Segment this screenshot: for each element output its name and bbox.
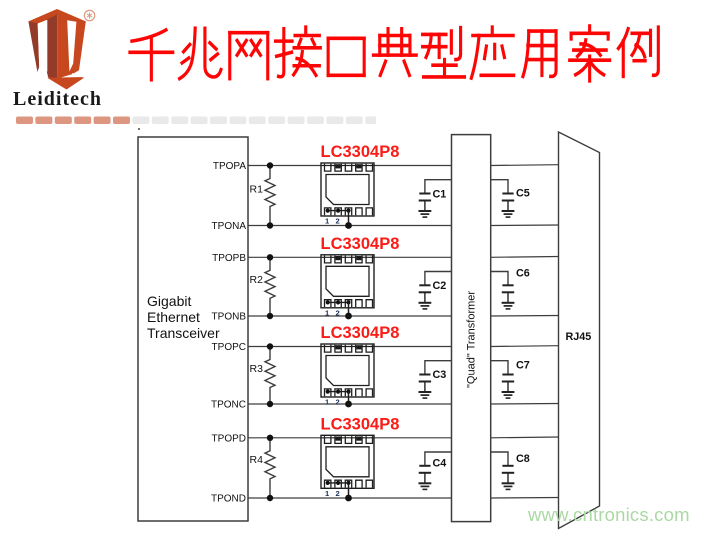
svg-text:R1: R1 bbox=[250, 184, 264, 196]
svg-text:R3: R3 bbox=[250, 363, 264, 375]
svg-text:C2: C2 bbox=[433, 280, 447, 292]
svg-text:TPOND: TPOND bbox=[211, 494, 246, 505]
svg-text:LC3304P8: LC3304P8 bbox=[321, 143, 400, 161]
svg-text:LC3304P8: LC3304P8 bbox=[321, 235, 400, 253]
svg-text:C3: C3 bbox=[433, 369, 447, 381]
svg-text:C5: C5 bbox=[516, 188, 530, 200]
svg-text:2: 2 bbox=[336, 308, 340, 317]
svg-text:2: 2 bbox=[336, 489, 340, 498]
svg-text:C1: C1 bbox=[433, 188, 447, 200]
svg-text:Ethernet: Ethernet bbox=[147, 309, 200, 325]
svg-text:2: 2 bbox=[336, 398, 340, 407]
svg-text:TPONB: TPONB bbox=[212, 312, 247, 323]
svg-text:C7: C7 bbox=[516, 360, 530, 372]
svg-text:RJ45: RJ45 bbox=[566, 331, 592, 343]
svg-text:"Quad" Transformer: "Quad" Transformer bbox=[466, 291, 478, 388]
svg-text:R2: R2 bbox=[250, 274, 264, 286]
svg-text:TPOPA: TPOPA bbox=[213, 161, 246, 172]
svg-text:C4: C4 bbox=[433, 458, 447, 470]
svg-text:2: 2 bbox=[336, 217, 340, 226]
svg-text:TPOPD: TPOPD bbox=[212, 433, 246, 444]
svg-text:R4: R4 bbox=[250, 454, 264, 466]
svg-text:TPONC: TPONC bbox=[211, 400, 246, 411]
svg-text:C6: C6 bbox=[516, 268, 530, 280]
svg-text:1: 1 bbox=[325, 398, 330, 407]
svg-text:Gigabit: Gigabit bbox=[147, 293, 191, 309]
svg-text:1: 1 bbox=[325, 489, 330, 498]
svg-text:LC3304P8: LC3304P8 bbox=[321, 415, 400, 433]
svg-text:TPOPC: TPOPC bbox=[212, 342, 246, 353]
svg-text:LC3304P8: LC3304P8 bbox=[321, 324, 400, 342]
svg-text:TPONA: TPONA bbox=[212, 221, 247, 232]
svg-text:1: 1 bbox=[325, 217, 330, 226]
svg-text:C8: C8 bbox=[516, 453, 530, 465]
svg-text:TPOPB: TPOPB bbox=[212, 253, 246, 264]
svg-text:Transceiver: Transceiver bbox=[147, 325, 220, 341]
